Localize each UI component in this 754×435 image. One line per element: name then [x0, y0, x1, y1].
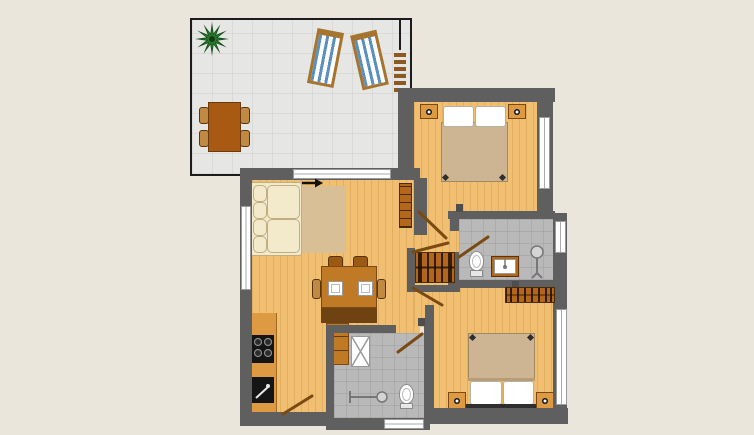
door-stop — [456, 204, 463, 212]
wall — [414, 178, 427, 235]
wall — [424, 325, 434, 420]
wall — [240, 412, 332, 426]
ladder — [394, 50, 406, 92]
nightstand — [508, 104, 526, 119]
toilet-tank — [470, 270, 483, 277]
wall — [428, 408, 568, 424]
wall — [448, 211, 555, 219]
window-bedroom1 — [539, 117, 550, 189]
window-left — [241, 206, 251, 290]
sofa-back-cushion — [253, 202, 267, 219]
bed2-pillow — [470, 381, 502, 405]
dining-chair — [377, 279, 386, 299]
kitchen-sink — [252, 377, 274, 403]
sideboard — [321, 308, 377, 323]
wall — [407, 248, 415, 290]
terrace-chair — [240, 107, 250, 124]
bedroom2-wardrobe — [505, 287, 555, 303]
bed2-pillow — [503, 381, 534, 405]
shower-tray — [351, 336, 370, 367]
sofa-back-cushion — [253, 219, 267, 236]
washbasin-sink — [494, 259, 516, 274]
window-bathroom2 — [384, 419, 424, 429]
toilet — [399, 384, 414, 404]
plate — [328, 281, 343, 296]
ladder-line — [399, 20, 401, 50]
bed1-pillow — [475, 106, 506, 127]
bed1-blanket — [441, 122, 508, 182]
sofa-seat-cushion — [267, 185, 300, 219]
plate — [358, 281, 373, 296]
door-stop — [418, 318, 425, 326]
wall — [398, 88, 414, 180]
nightstand — [420, 104, 438, 119]
wall — [450, 219, 459, 231]
window-bathroom1 — [555, 221, 566, 253]
sofa-back-cushion — [253, 185, 267, 202]
bookshelf — [399, 183, 412, 228]
wall — [326, 325, 334, 420]
sofa-seat-cushion — [267, 219, 300, 253]
hallway-wardrobe — [415, 252, 455, 283]
floor-plan — [0, 0, 754, 435]
terrace-sliding-door — [293, 169, 391, 179]
bed1-pillow — [443, 106, 474, 127]
toilet-tank — [400, 403, 413, 409]
dining-chair — [312, 279, 321, 299]
toilet — [469, 251, 484, 271]
terrace-dining-table — [208, 102, 241, 152]
cooktop — [252, 335, 274, 363]
wall — [398, 88, 555, 102]
wall — [326, 325, 396, 333]
sofa-back-cushion — [253, 236, 267, 253]
terrace-chair — [240, 130, 250, 147]
bed2-blanket — [468, 333, 535, 380]
window-bedroom2 — [556, 309, 567, 405]
